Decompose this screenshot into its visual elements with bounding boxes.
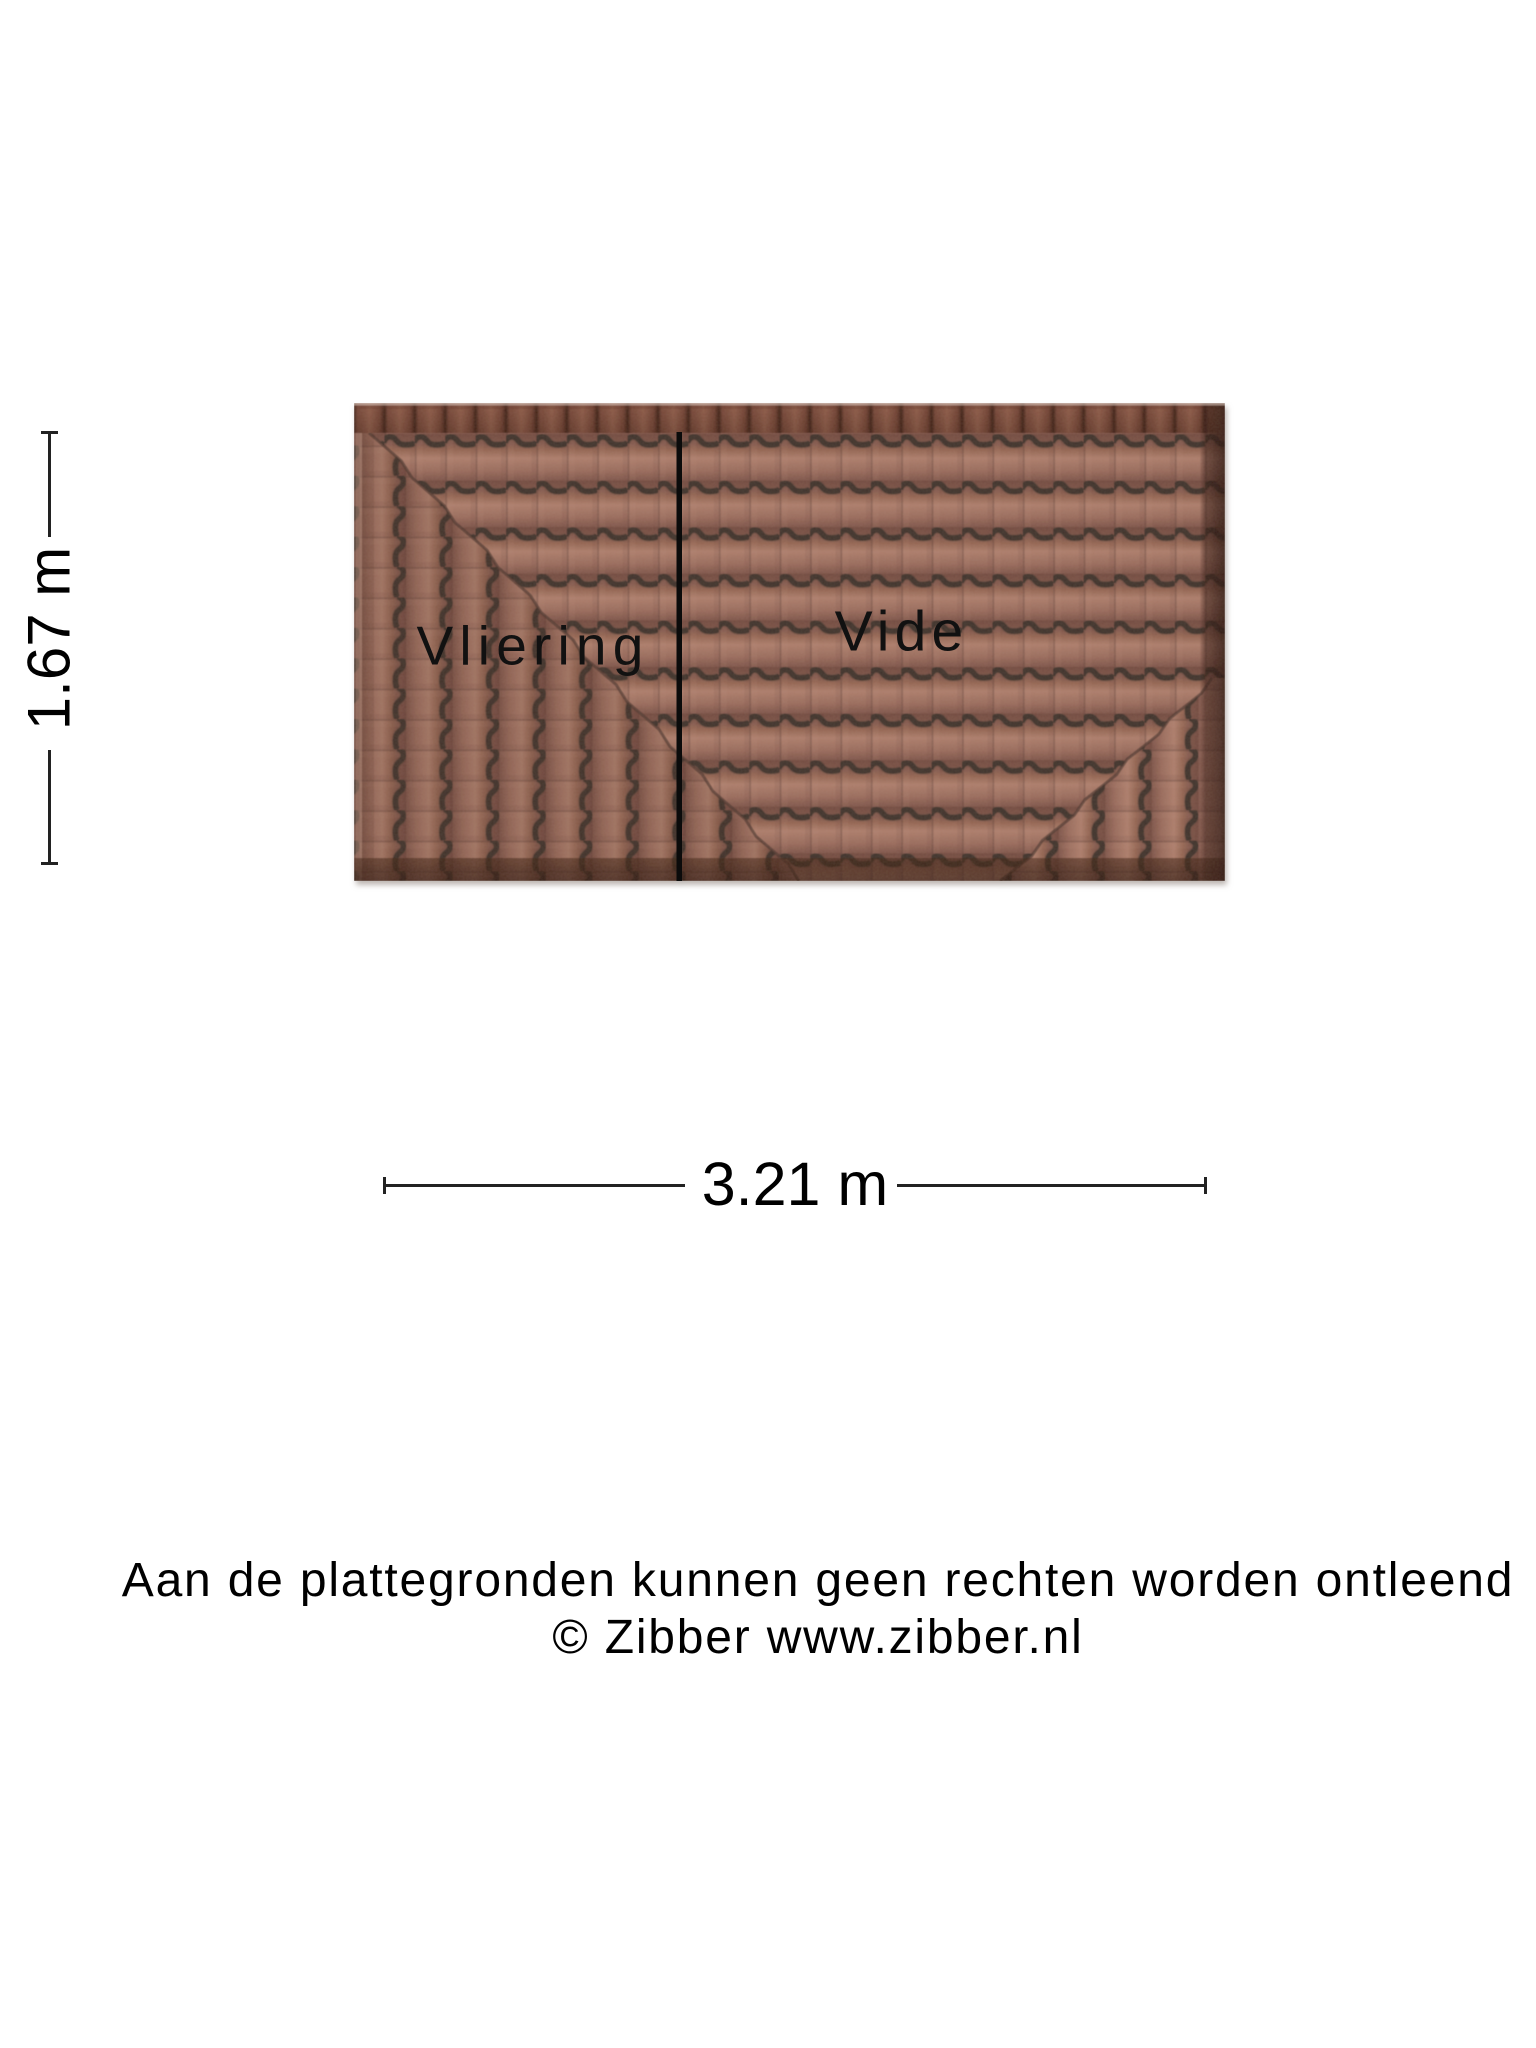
svg-text:Vide: Vide [835,600,969,664]
svg-text:Vliering: Vliering [416,615,649,677]
